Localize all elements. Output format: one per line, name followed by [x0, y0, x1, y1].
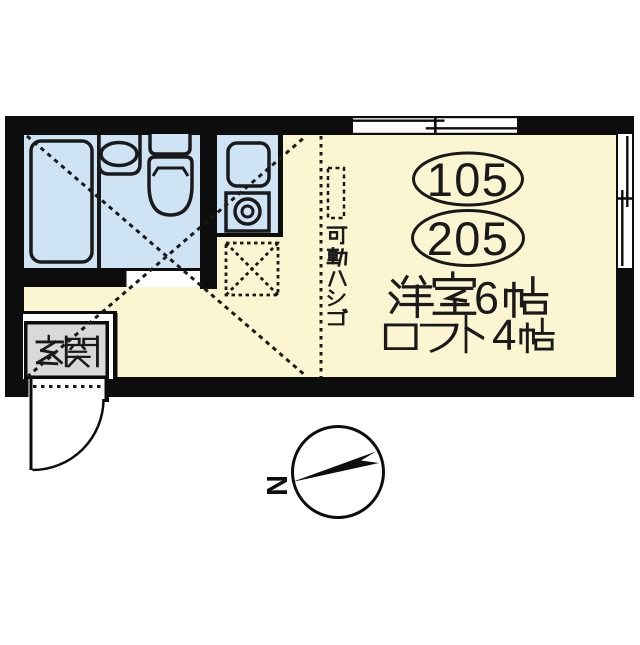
svg-text:N: N — [260, 475, 292, 496]
svg-text:105: 105 — [427, 153, 510, 206]
svg-text:4: 4 — [492, 311, 516, 360]
svg-text:205: 205 — [427, 212, 510, 265]
